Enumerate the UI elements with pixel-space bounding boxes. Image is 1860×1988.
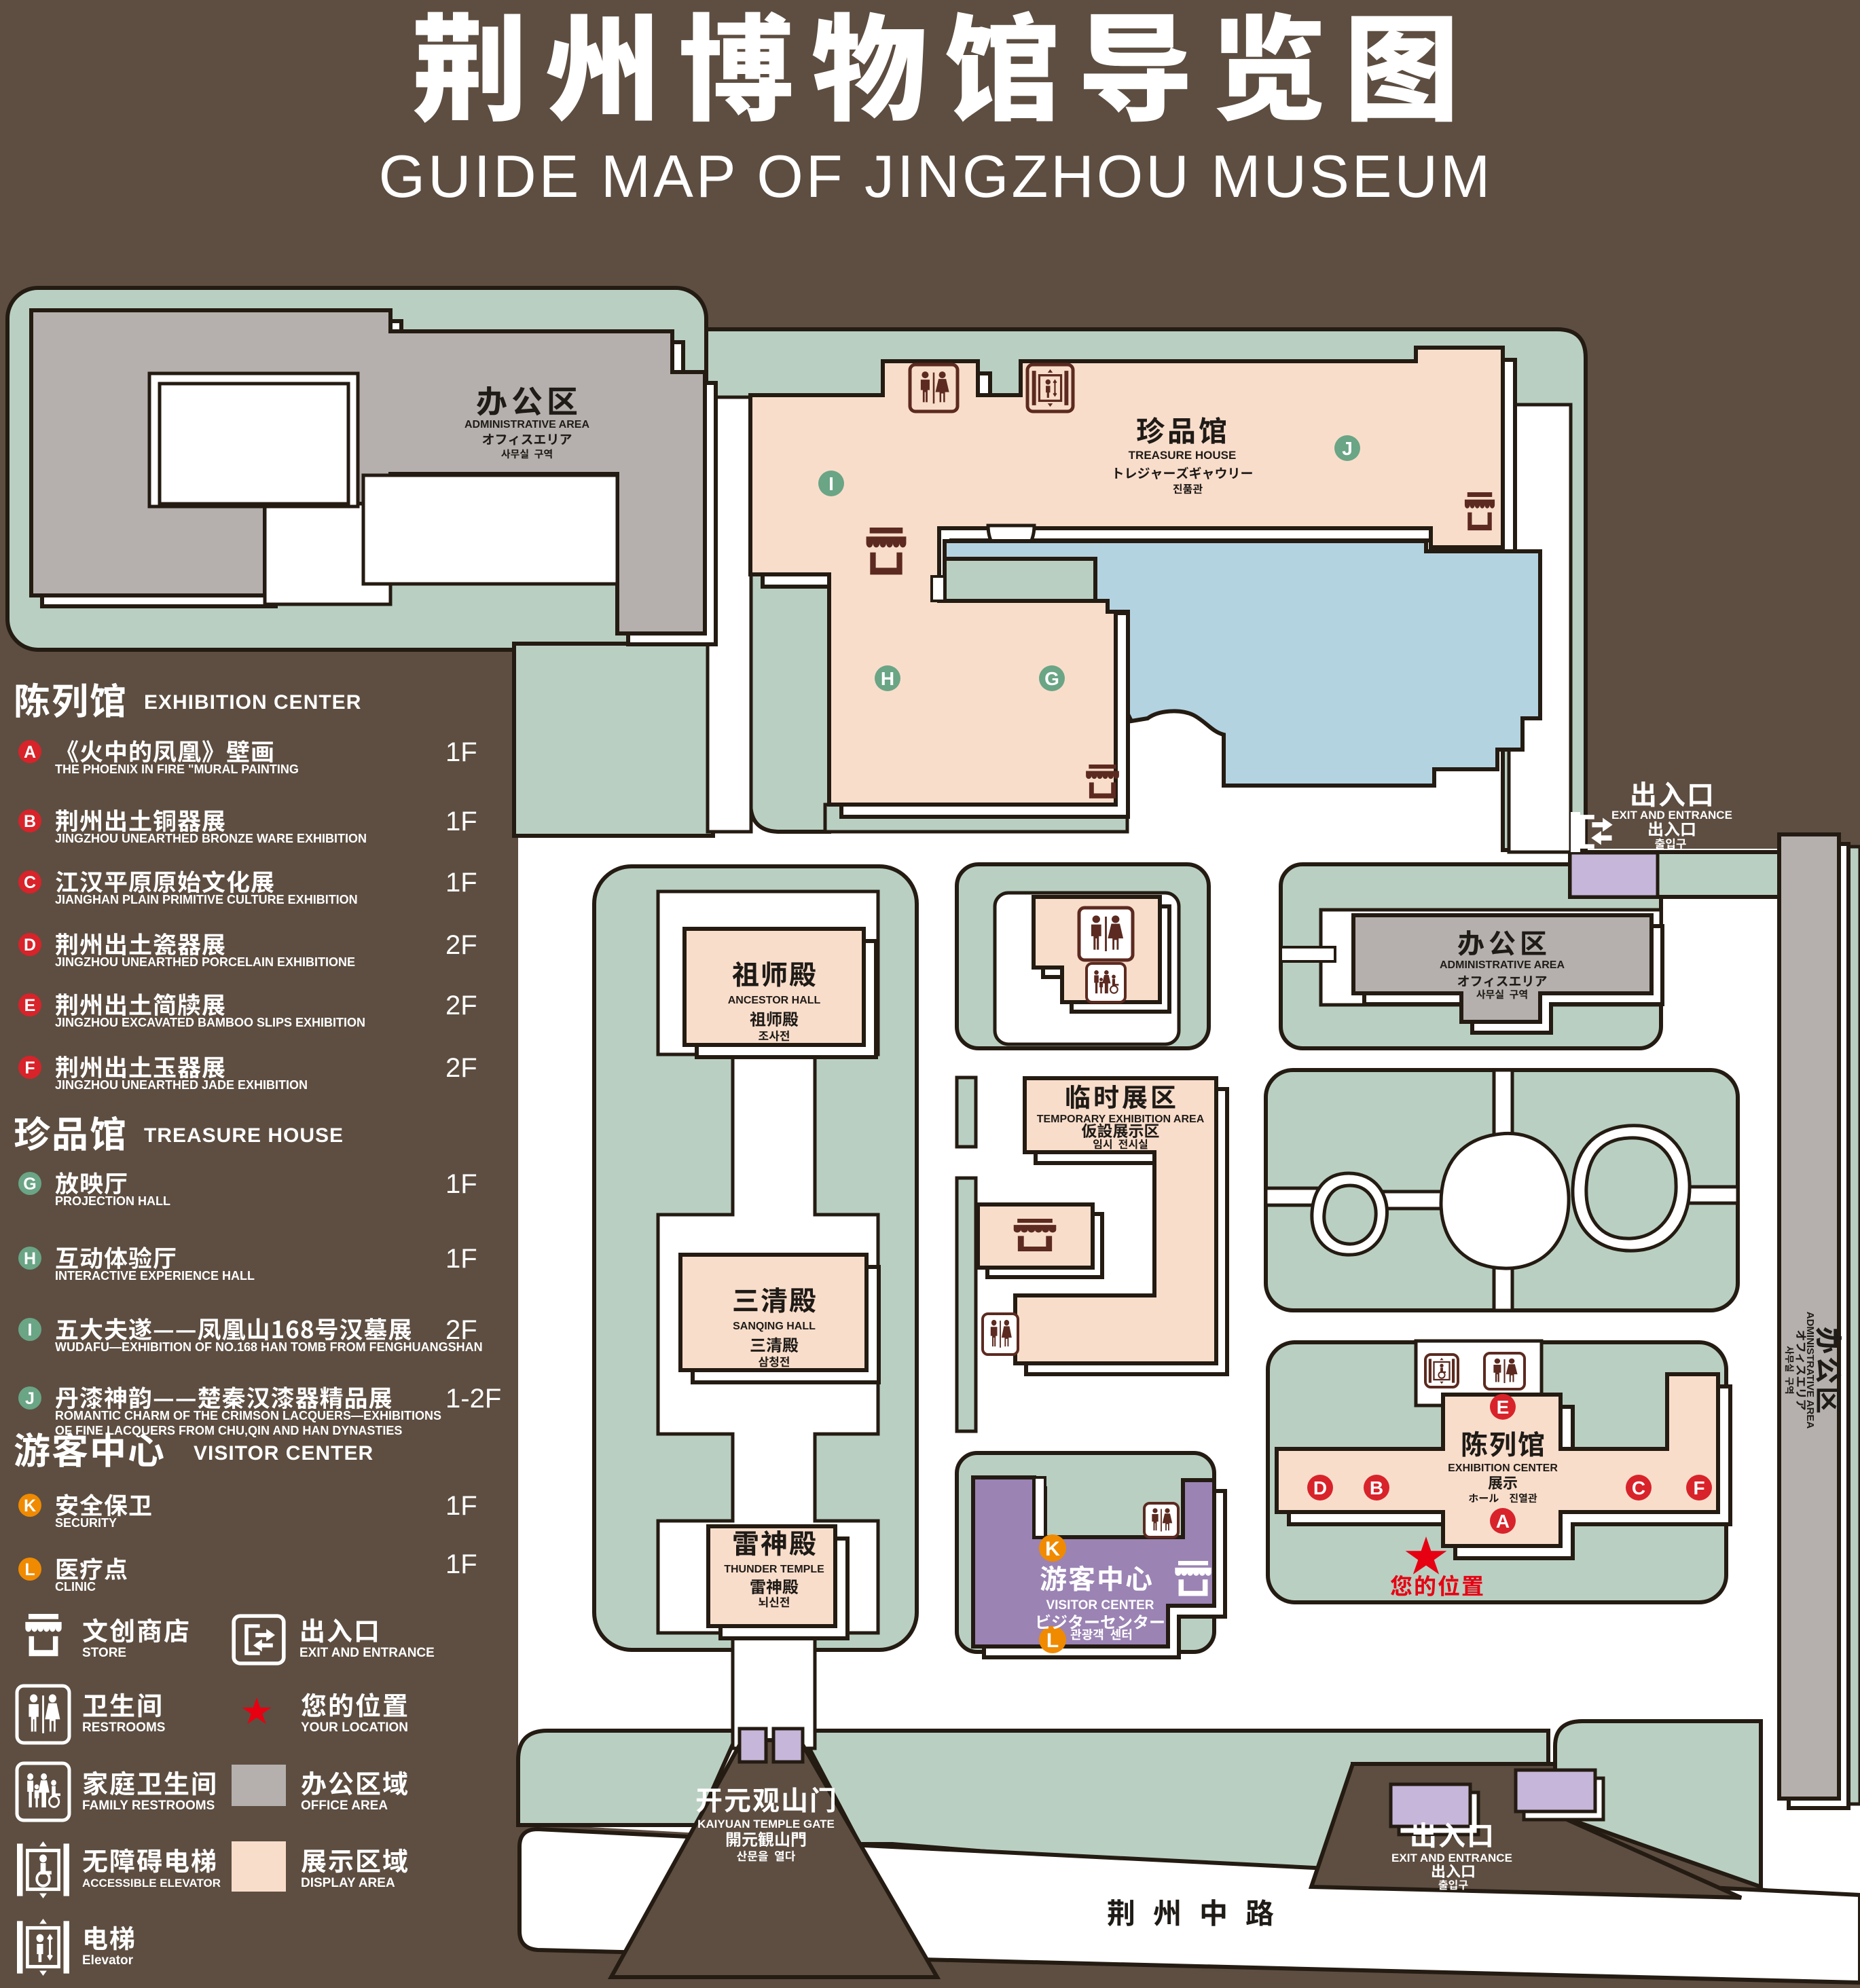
svg-text:C: C [1632, 1477, 1645, 1498]
svg-text:1F: 1F [445, 1491, 477, 1521]
svg-text:F: F [1693, 1477, 1704, 1498]
svg-text:STORE: STORE [82, 1646, 126, 1660]
svg-text:RESTROOMS: RESTROOMS [82, 1720, 165, 1735]
svg-text:G: G [1044, 668, 1059, 689]
svg-text:F: F [24, 1059, 35, 1078]
svg-text:TREASURE HOUSE: TREASURE HOUSE [1129, 449, 1237, 462]
svg-text:EXIT AND ENTRANCE: EXIT AND ENTRANCE [1611, 809, 1732, 822]
svg-text:OFFICE AREA: OFFICE AREA [301, 1799, 388, 1813]
svg-text:EXHIBITION CENTER: EXHIBITION CENTER [144, 691, 361, 714]
svg-text:JINGZHOU UNEARTHED JADE EXHIBI: JINGZHOU UNEARTHED JADE EXHIBITION [55, 1078, 308, 1092]
svg-text:I: I [28, 1321, 33, 1340]
svg-text:ACCESSIBLE ELEVATOR: ACCESSIBLE ELEVATOR [82, 1877, 221, 1890]
svg-text:D: D [1313, 1477, 1327, 1498]
svg-text:SECURITY: SECURITY [55, 1516, 117, 1530]
svg-text:GUIDE MAP OF JINGZHOU MUSEUM: GUIDE MAP OF JINGZHOU MUSEUM [379, 143, 1493, 210]
svg-text:2F: 2F [445, 930, 477, 960]
svg-text:2F: 2F [445, 991, 477, 1020]
svg-text:1F: 1F [445, 1244, 477, 1274]
svg-text:B: B [1370, 1477, 1383, 1498]
svg-text:THUNDER TEMPLE: THUNDER TEMPLE [724, 1564, 824, 1575]
svg-text:TEMPORARY EXHIBITION AREA: TEMPORARY EXHIBITION AREA [1037, 1113, 1205, 1125]
svg-text:EXIT AND ENTRANCE: EXIT AND ENTRANCE [1391, 1852, 1512, 1864]
svg-text:ADMINISTRATIVE AREA: ADMINISTRATIVE AREA [1440, 959, 1565, 971]
svg-text:1F: 1F [445, 807, 477, 836]
svg-text:ANCESTOR HALL: ANCESTOR HALL [728, 995, 821, 1006]
svg-text:JINGZHOU EXCAVATED BAMBOO SLIP: JINGZHOU EXCAVATED BAMBOO SLIPS EXHIBITI… [55, 1016, 365, 1029]
svg-text:DISPLAY AREA: DISPLAY AREA [301, 1876, 395, 1890]
svg-text:2F: 2F [445, 1315, 477, 1345]
svg-text:ROMANTIC CHARM OF THE CRIMSON: ROMANTIC CHARM OF THE CRIMSON LACQUERS—E… [55, 1409, 441, 1422]
svg-text:VISITOR CENTER: VISITOR CENTER [194, 1442, 373, 1465]
svg-text:EXIT AND ENTRANCE: EXIT AND ENTRANCE [299, 1646, 435, 1660]
svg-text:TREASURE HOUSE: TREASURE HOUSE [144, 1124, 344, 1147]
svg-text:E: E [1497, 1397, 1510, 1418]
svg-text:CLINIC: CLINIC [55, 1580, 96, 1594]
svg-text:A: A [24, 743, 36, 762]
svg-text:L: L [1046, 1630, 1059, 1652]
svg-text:EXHIBITION CENTER: EXHIBITION CENTER [1448, 1462, 1558, 1474]
svg-text:PROJECTION HALL: PROJECTION HALL [55, 1194, 170, 1208]
svg-text:WUDAFU—EXHIBITION OF NO.168 HA: WUDAFU—EXHIBITION OF NO.168 HAN TOMB FRO… [55, 1340, 483, 1354]
svg-text:1F: 1F [445, 868, 477, 898]
svg-text:JIANGHAN PLAIN PRIMITIVE CULTU: JIANGHAN PLAIN PRIMITIVE CULTURE EXHIBIT… [55, 893, 358, 906]
svg-text:D: D [24, 936, 36, 955]
svg-text:K: K [1045, 1538, 1060, 1560]
svg-text:J: J [1342, 438, 1353, 459]
svg-text:Elevator: Elevator [82, 1953, 134, 1968]
svg-text:JINGZHOU UNEARTHED PORCELAIN E: JINGZHOU UNEARTHED PORCELAIN EXHIBITIONE [55, 955, 355, 969]
svg-text:H: H [881, 668, 894, 689]
svg-text:JINGZHOU UNEARTHED BRONZE WARE: JINGZHOU UNEARTHED BRONZE WARE EXHIBITIO… [55, 832, 367, 845]
svg-text:INTERACTIVE EXPERIENCE HALL: INTERACTIVE EXPERIENCE HALL [55, 1269, 255, 1283]
svg-text:OF FINE LACQUERS FROM CHU,QIN: OF FINE LACQUERS FROM CHU,QIN AND HAN DY… [55, 1424, 402, 1437]
svg-text:C: C [24, 873, 36, 892]
svg-text:A: A [1496, 1511, 1510, 1532]
svg-text:1F: 1F [445, 1549, 477, 1579]
svg-text:K: K [24, 1496, 36, 1515]
svg-text:H: H [24, 1249, 36, 1268]
svg-text:VISITOR CENTER: VISITOR CENTER [1046, 1598, 1154, 1613]
svg-text:1F: 1F [445, 1169, 477, 1199]
svg-text:1-2F: 1-2F [445, 1384, 501, 1414]
svg-text:SANQING HALL: SANQING HALL [733, 1321, 816, 1332]
svg-text:1F: 1F [445, 737, 477, 767]
svg-text:KAIYUAN TEMPLE GATE: KAIYUAN TEMPLE GATE [697, 1818, 835, 1830]
svg-text:FAMILY RESTROOMS: FAMILY RESTROOMS [82, 1799, 215, 1813]
svg-text:2F: 2F [445, 1053, 477, 1083]
svg-text:B: B [24, 812, 36, 831]
svg-text:L: L [24, 1560, 35, 1579]
svg-text:I: I [828, 473, 834, 494]
svg-text:G: G [23, 1175, 36, 1194]
svg-text:THE PHOENIX IN FIRE "MURAL PAI: THE PHOENIX IN FIRE "MURAL PAINTING [55, 762, 299, 776]
svg-text:E: E [24, 996, 36, 1015]
svg-text:YOUR LOCATION: YOUR LOCATION [301, 1720, 408, 1735]
svg-text:J: J [25, 1389, 35, 1408]
svg-text:ADMINISTRATIVE AREA: ADMINISTRATIVE AREA [1804, 1312, 1816, 1429]
svg-text:ADMINISTRATIVE AREA: ADMINISTRATIVE AREA [464, 419, 589, 430]
